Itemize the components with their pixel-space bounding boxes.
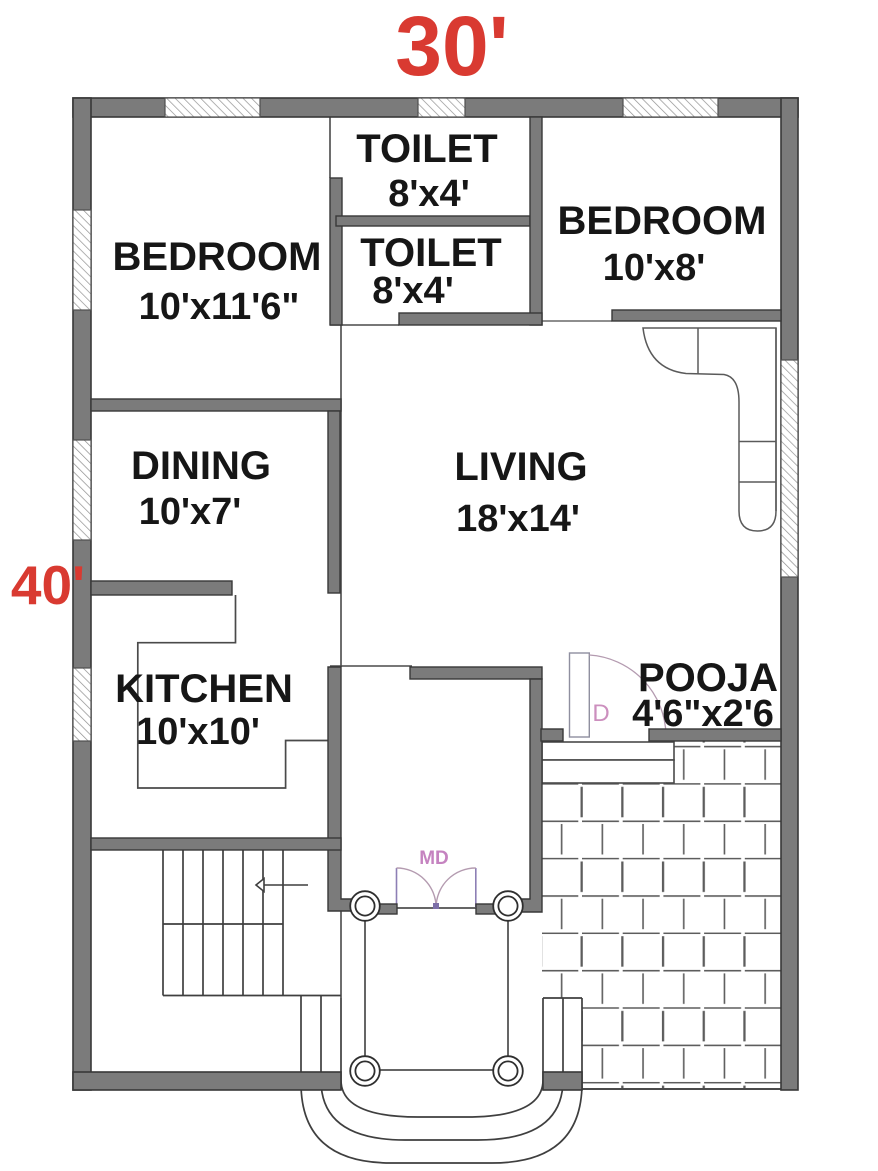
svg-text:TOILET: TOILET: [356, 127, 497, 171]
svg-text:8'x4': 8'x4': [388, 173, 469, 215]
svg-text:D: D: [592, 700, 609, 727]
svg-text:LIVING: LIVING: [454, 445, 587, 489]
svg-text:10'x11'6": 10'x11'6": [139, 286, 300, 328]
svg-text:8'x4': 8'x4': [372, 270, 453, 312]
svg-text:TOILET: TOILET: [360, 231, 501, 275]
svg-text:18'x14': 18'x14': [456, 498, 580, 540]
svg-text:4'6"x2'6: 4'6"x2'6: [632, 693, 774, 735]
svg-text:BEDROOM: BEDROOM: [558, 199, 767, 243]
svg-text:40': 40': [11, 554, 85, 616]
svg-text:MD: MD: [419, 848, 449, 869]
svg-text:30': 30': [395, 0, 508, 93]
svg-text:DINING: DINING: [131, 444, 271, 488]
svg-text:10'x7': 10'x7': [139, 491, 242, 533]
svg-text:10'x8': 10'x8': [603, 247, 706, 289]
svg-text:10'x10': 10'x10': [136, 711, 260, 753]
svg-text:BEDROOM: BEDROOM: [113, 235, 322, 279]
svg-text:KITCHEN: KITCHEN: [115, 667, 293, 711]
